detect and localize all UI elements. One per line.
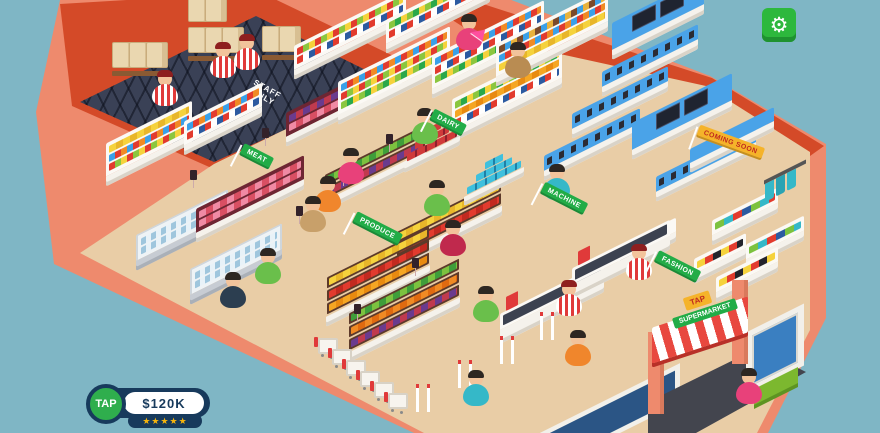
settings-button[interactable]: ⚙ bbox=[762, 8, 796, 42]
price-sign-stand bbox=[262, 128, 269, 138]
customer bbox=[300, 196, 326, 232]
customer bbox=[736, 368, 762, 404]
cashier-staff bbox=[556, 280, 582, 316]
tap-button[interactable]: TAP bbox=[86, 384, 126, 424]
hanging-clothes bbox=[765, 179, 774, 201]
shopping-cart bbox=[388, 393, 408, 409]
customer bbox=[424, 180, 450, 216]
security-gate bbox=[500, 338, 514, 364]
customer bbox=[505, 42, 531, 78]
security-gate bbox=[416, 386, 430, 412]
tv-screen bbox=[632, 4, 656, 32]
security-gate bbox=[540, 314, 554, 340]
cardboard-box bbox=[146, 42, 168, 68]
game-viewport: STAFF ONLY bbox=[0, 0, 880, 433]
money-badge[interactable]: $120K TAP ★★★★★ bbox=[84, 384, 214, 430]
price-sign-stand bbox=[190, 170, 197, 180]
customer bbox=[565, 330, 591, 366]
staff-member bbox=[210, 42, 236, 78]
gear-icon: ⚙ bbox=[770, 15, 789, 36]
customer bbox=[473, 286, 499, 322]
staff-member bbox=[152, 70, 178, 106]
customer bbox=[338, 148, 364, 184]
price-sign-stand bbox=[412, 258, 419, 268]
box-stack bbox=[262, 26, 296, 60]
cardboard-box bbox=[205, 0, 227, 22]
hanging-clothes bbox=[787, 169, 796, 191]
price-sign-stand bbox=[354, 304, 361, 314]
customer bbox=[440, 220, 466, 256]
staff-member bbox=[234, 34, 260, 70]
hanging-clothes bbox=[776, 174, 785, 196]
tutorial-arrow-cursor bbox=[469, 27, 485, 42]
price-sign-stand bbox=[386, 134, 393, 144]
cashier-staff bbox=[626, 244, 652, 280]
star-rating: ★★★★★ bbox=[128, 414, 202, 428]
customer bbox=[463, 370, 489, 406]
customer bbox=[220, 272, 246, 308]
money-amount: $120K bbox=[124, 392, 204, 414]
customer bbox=[255, 248, 281, 284]
